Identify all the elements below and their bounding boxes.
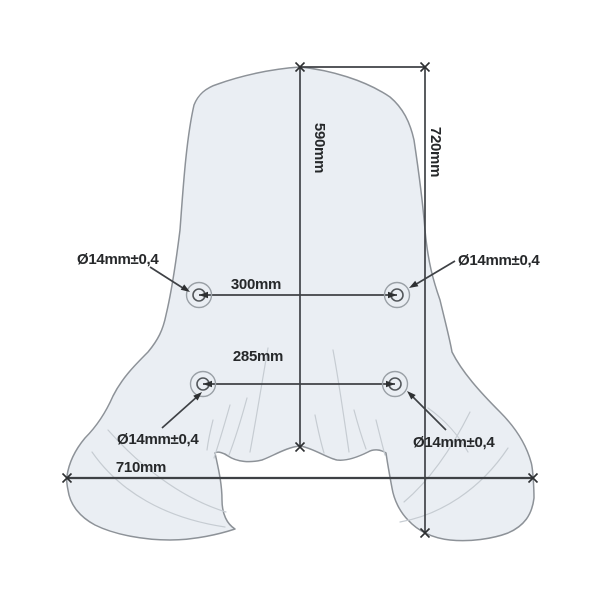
windscreen-technical-drawing: 590mm 720mm 300mm 285mm 710mm Ø14mm±0,4 … [0, 0, 600, 600]
label-710mm: 710mm [116, 459, 166, 476]
label-hole-upper-left: Ø14mm±0,4 [77, 251, 159, 268]
label-285mm: 285mm [233, 348, 283, 365]
label-300mm: 300mm [231, 276, 281, 293]
label-hole-lower-left: Ø14mm±0,4 [117, 431, 199, 448]
label-hole-lower-right: Ø14mm±0,4 [413, 434, 495, 451]
label-720mm: 720mm [427, 127, 444, 177]
label-590mm: 590mm [311, 123, 328, 173]
drawing-canvas: 590mm 720mm 300mm 285mm 710mm Ø14mm±0,4 … [0, 0, 600, 600]
label-hole-upper-right: Ø14mm±0,4 [458, 252, 540, 269]
